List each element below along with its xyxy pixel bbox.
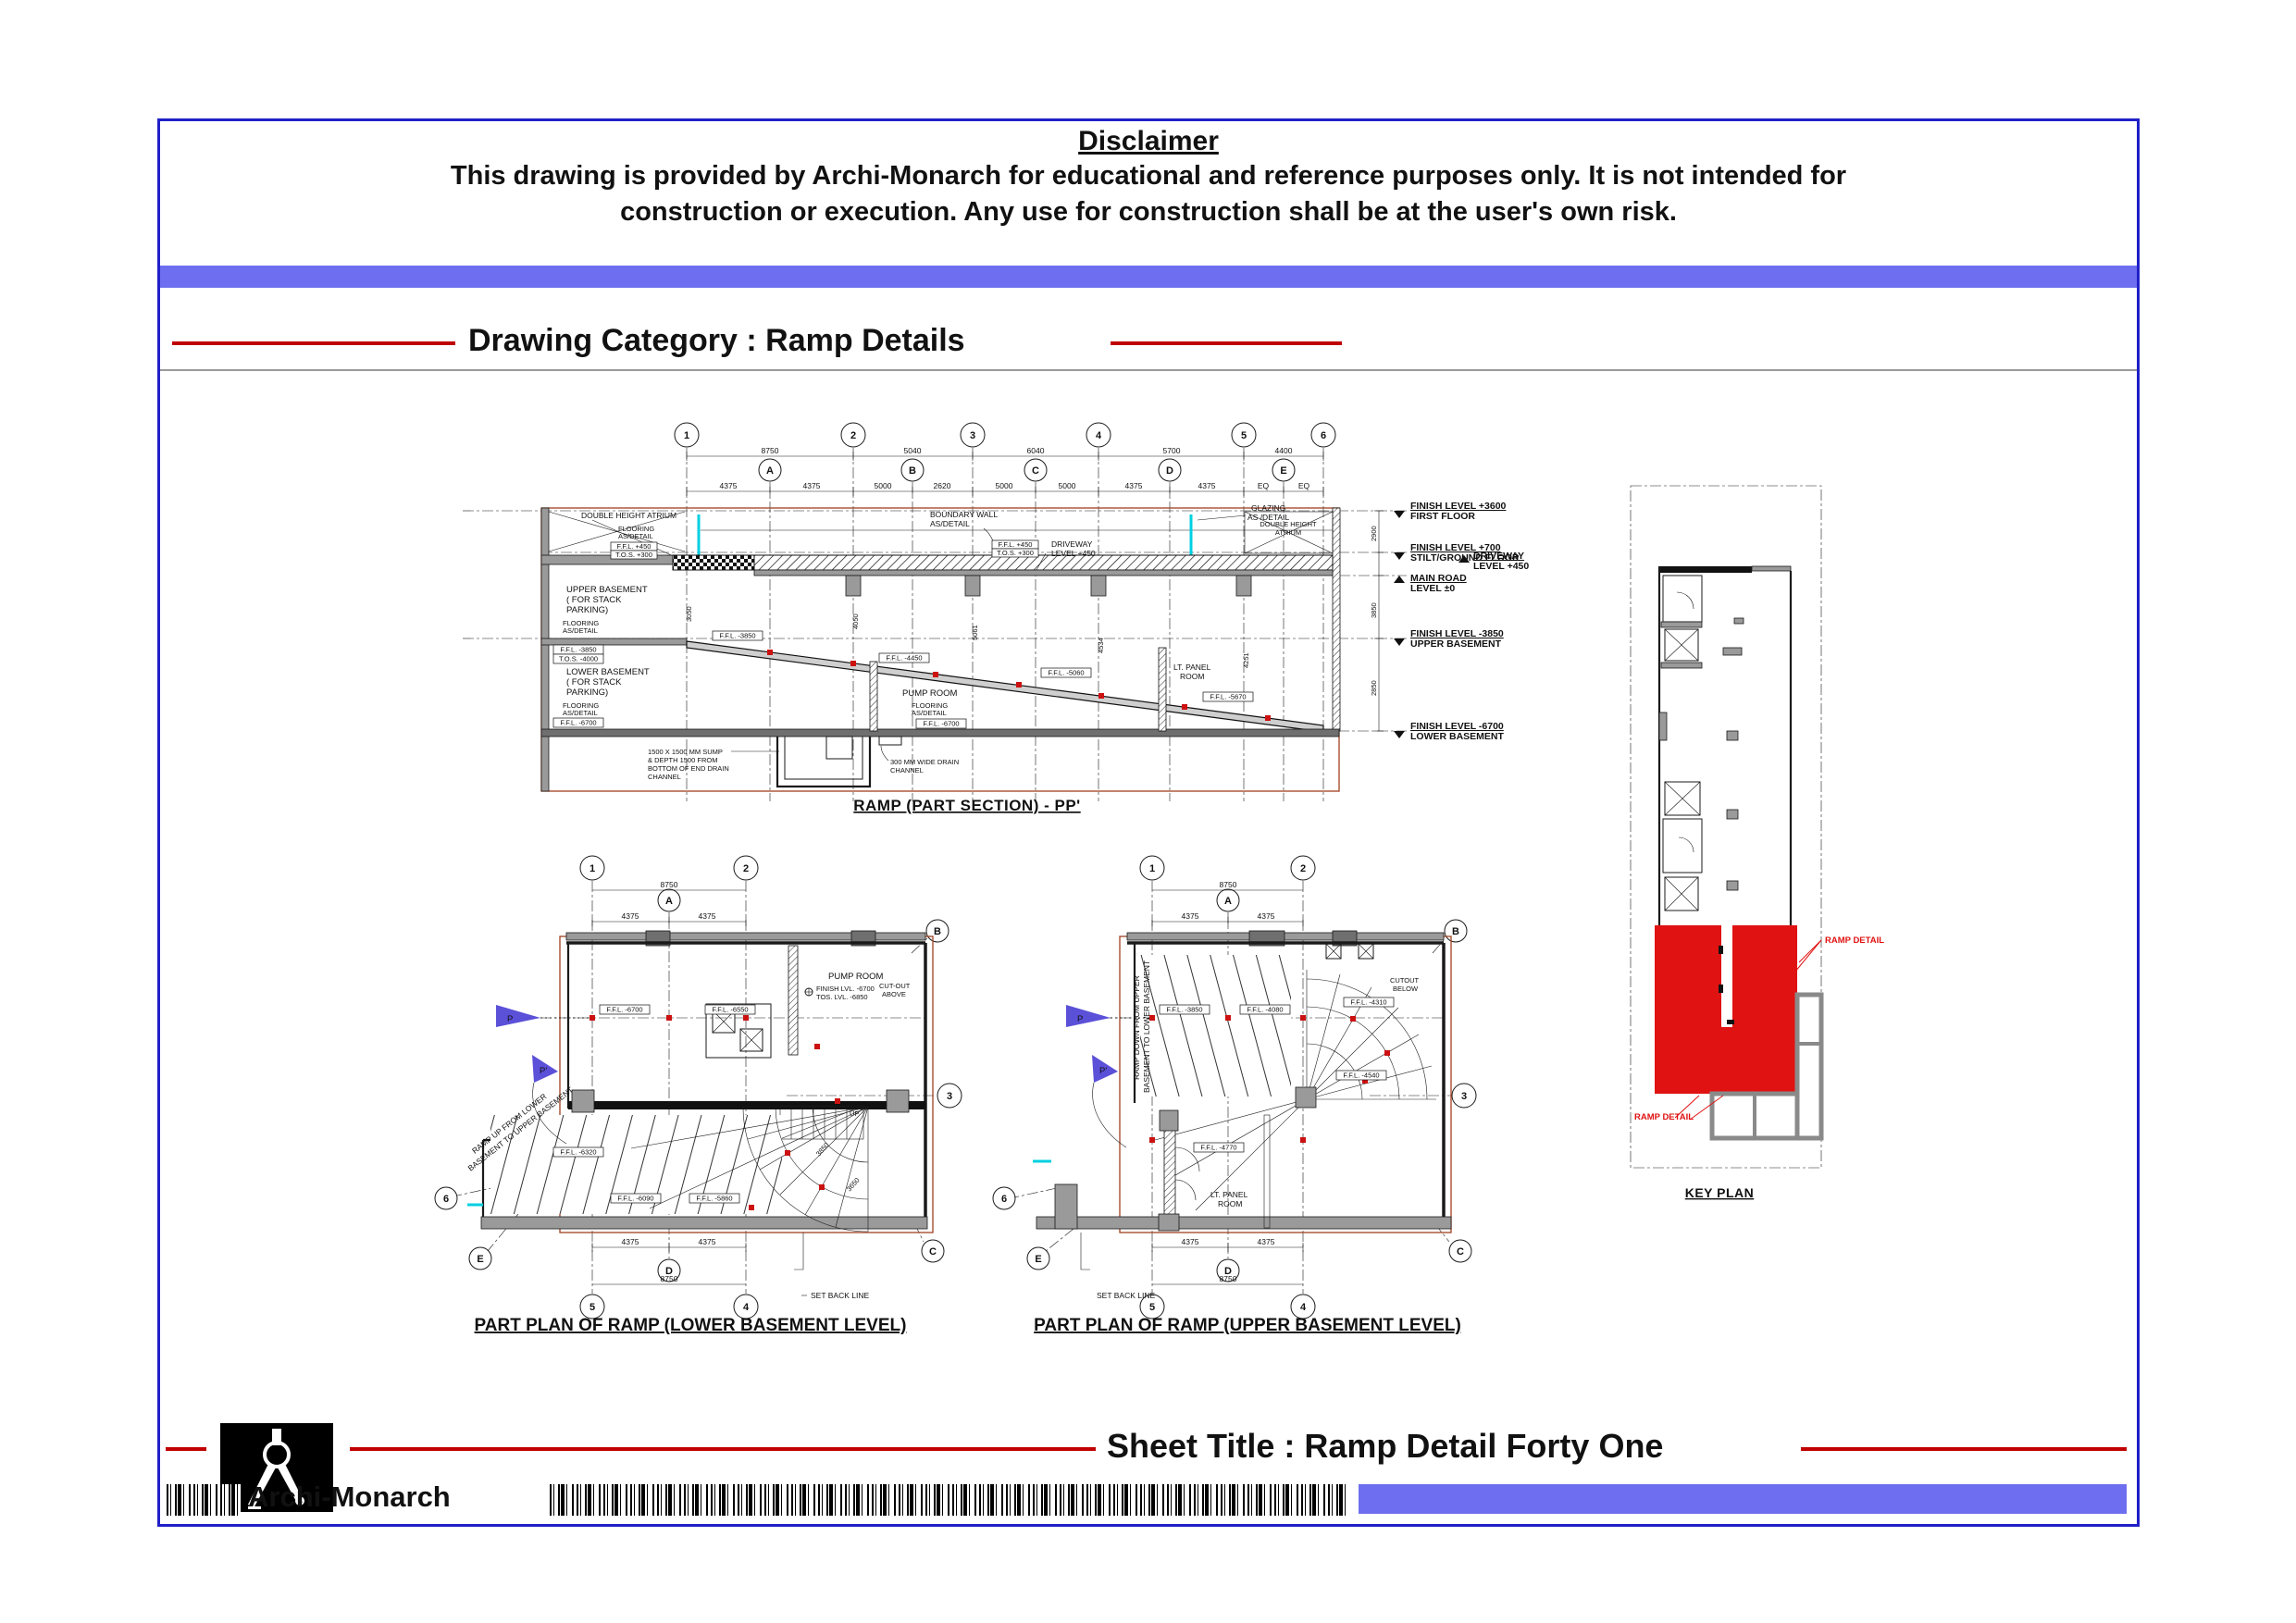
upper-basement-label: UPPER BASEMENT ( FOR STACK PARKING) FLOO… bbox=[563, 585, 648, 635]
svg-text:4375: 4375 bbox=[1198, 481, 1216, 490]
svg-text:300 MM WIDE DRAIN: 300 MM WIDE DRAIN bbox=[890, 758, 959, 766]
svg-text:LOWER BASEMENT: LOWER BASEMENT bbox=[566, 667, 650, 677]
svg-text:4375: 4375 bbox=[1182, 1237, 1199, 1246]
svg-text:BASEMENT TO LOWER BASEMENT: BASEMENT TO LOWER BASEMENT bbox=[1142, 960, 1151, 1093]
svg-text:E: E bbox=[1035, 1254, 1041, 1265]
grid-bubble-B: B bbox=[909, 465, 916, 477]
svg-text:3: 3 bbox=[947, 1091, 952, 1102]
grid-bubble-E: E bbox=[1280, 465, 1286, 477]
svg-text:3: 3 bbox=[1461, 1091, 1467, 1102]
svg-text:4: 4 bbox=[1300, 1302, 1307, 1313]
svg-text:P: P bbox=[1077, 1014, 1083, 1024]
sump-pit bbox=[777, 737, 901, 787]
svg-text:LT. PANEL: LT. PANEL bbox=[1173, 663, 1211, 672]
ramp-direction-label-upper: RAMP DOWN FROM UPPER BASEMENT TO LOWER B… bbox=[1132, 960, 1151, 1093]
svg-text:F.F.L. -6090: F.F.L. -6090 bbox=[617, 1195, 653, 1203]
svg-text:RAMP DETAIL: RAMP DETAIL bbox=[1634, 1112, 1694, 1122]
svg-text:PARKING): PARKING) bbox=[566, 688, 608, 698]
svg-text:4375: 4375 bbox=[622, 911, 639, 921]
svg-text:4375: 4375 bbox=[803, 481, 821, 490]
section-dimension-row1: 8750 5040 6040 5700 4400 bbox=[687, 446, 1323, 461]
svg-text:F.F.L. -4770: F.F.L. -4770 bbox=[1200, 1144, 1236, 1152]
svg-text:5000: 5000 bbox=[1059, 481, 1076, 490]
svg-text:3850: 3850 bbox=[1370, 602, 1378, 618]
plan-upper-title: PART PLAN OF RAMP (UPPER BASEMENT LEVEL) bbox=[1034, 1316, 1461, 1335]
svg-text:3650: 3650 bbox=[845, 1176, 862, 1193]
svg-text:5700: 5700 bbox=[1163, 446, 1181, 455]
grid-bubble-1: 1 bbox=[684, 430, 689, 441]
section-flag-p-lower: P bbox=[496, 1005, 590, 1027]
barcode-right bbox=[550, 1484, 1347, 1516]
footer-rule-mid bbox=[350, 1447, 1096, 1451]
svg-text:AS/DETAIL: AS/DETAIL bbox=[618, 532, 653, 540]
svg-text:F.F.L. -4450: F.F.L. -4450 bbox=[886, 654, 922, 663]
plan-lower-title: PART PLAN OF RAMP (LOWER BASEMENT LEVEL) bbox=[475, 1316, 907, 1335]
svg-text:8750: 8750 bbox=[661, 1274, 678, 1283]
svg-text:4375: 4375 bbox=[1258, 911, 1275, 921]
barcode-left bbox=[167, 1484, 241, 1516]
svg-text:BOTTOM OF END DRAIN: BOTTOM OF END DRAIN bbox=[648, 764, 729, 773]
svg-text:8750: 8750 bbox=[1220, 880, 1237, 889]
svg-text:4375: 4375 bbox=[699, 1237, 716, 1246]
svg-text:E: E bbox=[477, 1254, 483, 1265]
sump-annotation: 1500 X 1500 MM SUMP & DEPTH 1500 FROM BO… bbox=[648, 748, 779, 781]
svg-text:2620: 2620 bbox=[934, 481, 951, 490]
svg-text:SET BACK LINE: SET BACK LINE bbox=[811, 1291, 869, 1300]
svg-text:5: 5 bbox=[590, 1302, 595, 1313]
svg-text:2: 2 bbox=[743, 863, 749, 874]
svg-text:BELOW: BELOW bbox=[1393, 985, 1419, 993]
key-plan-title: KEY PLAN bbox=[1685, 1185, 1755, 1200]
svg-text:F.F.L. -6320: F.F.L. -6320 bbox=[560, 1148, 596, 1157]
svg-text:CHANNEL: CHANNEL bbox=[890, 766, 924, 774]
svg-text:F.F.L. -4310: F.F.L. -4310 bbox=[1350, 998, 1386, 1007]
svg-text:P': P' bbox=[1099, 1066, 1107, 1076]
section-right-dims: 2900 3850 2850 bbox=[1370, 511, 1384, 731]
svg-text:4375: 4375 bbox=[720, 481, 738, 490]
svg-text:AS/DETAIL: AS/DETAIL bbox=[563, 709, 598, 717]
svg-text:4375: 4375 bbox=[699, 911, 716, 921]
svg-text:5000: 5000 bbox=[996, 481, 1013, 490]
svg-text:EQ: EQ bbox=[1258, 481, 1270, 490]
grid-bubble-5: 5 bbox=[1241, 430, 1247, 441]
svg-text:AS /DETAIL: AS /DETAIL bbox=[1247, 513, 1289, 522]
svg-text:6040: 6040 bbox=[1027, 446, 1045, 455]
svg-text:PARKING): PARKING) bbox=[566, 605, 608, 615]
svg-text:F.F.L. -6700: F.F.L. -6700 bbox=[923, 720, 959, 728]
svg-text:AS/DETAIL: AS/DETAIL bbox=[912, 709, 947, 717]
level-first-floor: FINISH LEVEL +3600 FIRST FLOOR bbox=[1394, 501, 1507, 522]
lower-basement-floor bbox=[541, 729, 1339, 737]
svg-text:ROOM: ROOM bbox=[1218, 1199, 1242, 1208]
level-main-road: MAIN ROAD LEVEL ±0 bbox=[1394, 573, 1467, 594]
grid-bubble-D: D bbox=[1166, 465, 1173, 477]
svg-text:2900: 2900 bbox=[1370, 526, 1378, 541]
footer-rule-left bbox=[166, 1447, 206, 1451]
svg-text:FIRST FLOOR: FIRST FLOOR bbox=[1410, 511, 1475, 522]
svg-text:P': P' bbox=[540, 1066, 547, 1076]
svg-text:LOWER BASEMENT: LOWER BASEMENT bbox=[1410, 731, 1505, 742]
section-pump-room: PUMP ROOM FLOORING AS/DETAIL F.F.L. -670… bbox=[902, 688, 966, 728]
svg-text:& DEPTH 1500 FROM: & DEPTH 1500 FROM bbox=[648, 756, 717, 764]
svg-text:LEVEL +450: LEVEL +450 bbox=[1051, 549, 1096, 558]
svg-text:6: 6 bbox=[1001, 1194, 1007, 1205]
lower-basement-label: LOWER BASEMENT ( FOR STACK PARKING) FLOO… bbox=[563, 667, 650, 717]
plan-upper-lt-panel-room: LT. PANEL ROOM bbox=[1159, 1110, 1270, 1231]
svg-text:T.O.S. +300: T.O.S. +300 bbox=[997, 549, 1034, 557]
drawing-sheet-page: { "page": { "disclaimer_heading": "Discl… bbox=[0, 0, 2296, 1623]
svg-text:3850: 3850 bbox=[814, 1141, 831, 1158]
svg-text:PUMP ROOM: PUMP ROOM bbox=[902, 688, 958, 699]
svg-text:A: A bbox=[1224, 896, 1232, 907]
svg-text:UPPER BASEMENT: UPPER BASEMENT bbox=[566, 585, 648, 595]
svg-text:4375: 4375 bbox=[1182, 911, 1199, 921]
svg-text:EQ: EQ bbox=[1298, 481, 1310, 490]
svg-text:C: C bbox=[929, 1246, 937, 1258]
svg-text:1: 1 bbox=[590, 863, 595, 874]
svg-text:RAMP DOWN FROM UPPER: RAMP DOWN FROM UPPER bbox=[1132, 975, 1141, 1080]
sheet-title: Sheet Title : Ramp Detail Forty One bbox=[1107, 1427, 1663, 1466]
setback-lower: SET BACK LINE bbox=[794, 1233, 869, 1300]
svg-text:3050: 3050 bbox=[685, 606, 693, 622]
upper-basement-floor bbox=[541, 638, 687, 645]
ramp-part-section-drawing: 1 2 3 4 5 6 A B C D E 8750 5040 6040 570… bbox=[463, 423, 1529, 814]
section-flag-p2-upper: P' bbox=[1092, 1055, 1126, 1147]
brand-name: Archi-Monarch bbox=[248, 1481, 451, 1514]
svg-text:F.F.L. -5860: F.F.L. -5860 bbox=[696, 1195, 732, 1203]
svg-text:T.O.S. +300: T.O.S. +300 bbox=[615, 551, 652, 559]
svg-text:GLAZING: GLAZING bbox=[1251, 503, 1285, 513]
svg-text:F.F.L. -3850: F.F.L. -3850 bbox=[560, 646, 596, 654]
svg-text:BOUNDARY WALL: BOUNDARY WALL bbox=[930, 510, 998, 519]
svg-text:4050: 4050 bbox=[851, 613, 860, 629]
footer-rule-right bbox=[1801, 1447, 2127, 1451]
svg-text:F.F.L. +450: F.F.L. +450 bbox=[999, 540, 1033, 549]
svg-text:DRIVEWAY: DRIVEWAY bbox=[1051, 539, 1093, 549]
svg-text:B: B bbox=[934, 926, 941, 937]
grid-bubble-3: 3 bbox=[970, 430, 975, 441]
svg-text:LEVEL ±0: LEVEL ±0 bbox=[1410, 583, 1455, 594]
setback-upper: SET BACK LINE bbox=[1081, 1233, 1155, 1300]
svg-text:F.F.L. -4540: F.F.L. -4540 bbox=[1343, 1072, 1379, 1080]
cad-drawing-canvas: 1 2 3 4 5 6 A B C D E 8750 5040 6040 570… bbox=[0, 0, 2296, 1623]
svg-text:F.F.L. -5060: F.F.L. -5060 bbox=[1048, 669, 1084, 677]
grid-bubble-4: 4 bbox=[1096, 430, 1102, 441]
grid-bubble-A: A bbox=[766, 465, 774, 477]
grid-bubble-2: 2 bbox=[850, 430, 856, 441]
section-lt-panel-room: LT. PANEL ROOM bbox=[1173, 663, 1211, 681]
svg-text:4251: 4251 bbox=[1242, 652, 1250, 668]
svg-text:4: 4 bbox=[743, 1302, 750, 1313]
svg-text:F.F.L. -4080: F.F.L. -4080 bbox=[1247, 1006, 1283, 1014]
svg-text:F.F.L. -6550: F.F.L. -6550 bbox=[712, 1006, 748, 1014]
svg-text:4534: 4534 bbox=[1097, 638, 1105, 653]
svg-text:DOUBLE HEIGHT ATRIUM: DOUBLE HEIGHT ATRIUM bbox=[581, 511, 676, 520]
svg-text:ROOM: ROOM bbox=[1180, 672, 1204, 681]
svg-text:T.O.S. -4000: T.O.S. -4000 bbox=[559, 655, 598, 663]
svg-text:ATRIUM: ATRIUM bbox=[1275, 528, 1301, 537]
svg-text:F.F.L. -5670: F.F.L. -5670 bbox=[1210, 693, 1246, 701]
ramp-slab bbox=[687, 641, 1323, 732]
part-plan-upper-basement: 1 2 A B 3 C E 6 D 5 4 8750 4375 4375 bbox=[993, 856, 1476, 1335]
svg-text:8750: 8750 bbox=[1220, 1274, 1237, 1283]
svg-text:LEVEL +450: LEVEL +450 bbox=[1473, 561, 1529, 572]
ramp-detail-callout-1: RAMP DETAIL bbox=[1786, 935, 1884, 983]
svg-text:5000: 5000 bbox=[875, 481, 892, 490]
svg-text:5061: 5061 bbox=[971, 625, 979, 640]
section-title: RAMP (PART SECTION) - PP' bbox=[853, 797, 1080, 814]
driveway-slab bbox=[541, 555, 1333, 596]
svg-text:A: A bbox=[665, 896, 673, 907]
svg-text:ABOVE: ABOVE bbox=[882, 990, 906, 998]
svg-text:TOS. LVL. -6850: TOS. LVL. -6850 bbox=[816, 993, 868, 1001]
svg-text:1500 X 1500 MM SUMP: 1500 X 1500 MM SUMP bbox=[648, 748, 723, 756]
svg-text:2850: 2850 bbox=[1370, 680, 1378, 696]
grid-bubble-C: C bbox=[1032, 465, 1039, 477]
svg-text:( FOR STACK: ( FOR STACK bbox=[566, 595, 622, 605]
svg-text:5040: 5040 bbox=[904, 446, 922, 455]
svg-text:LT. PANEL: LT. PANEL bbox=[1210, 1190, 1248, 1199]
svg-text:F.F.L. -6700: F.F.L. -6700 bbox=[606, 1006, 642, 1014]
grid-bubble-6: 6 bbox=[1321, 430, 1326, 441]
ramp-stripes-upper bbox=[1140, 955, 1291, 1096]
svg-text:P: P bbox=[507, 1014, 513, 1024]
svg-text:F.F.L. -6700: F.F.L. -6700 bbox=[560, 719, 596, 727]
key-plan: RAMP DETAIL RAMP DETAIL KEY PLAN bbox=[1631, 486, 1884, 1200]
svg-text:AS/DETAIL: AS/DETAIL bbox=[563, 626, 598, 635]
svg-text:CHANNEL: CHANNEL bbox=[648, 773, 681, 781]
svg-text:B: B bbox=[1452, 926, 1459, 937]
svg-text:PUMP ROOM: PUMP ROOM bbox=[828, 972, 884, 982]
part-plan-lower-basement: 1 2 A B 3 C E 6 D 5 4 8750 4375 4375 bbox=[435, 856, 962, 1335]
svg-text:F.F.L. -3850: F.F.L. -3850 bbox=[1166, 1006, 1202, 1014]
svg-text:AS/DETAIL: AS/DETAIL bbox=[930, 519, 970, 528]
key-plan-ramp-highlight bbox=[1655, 925, 1797, 1094]
level-lower-basement: FINISH LEVEL -6700 LOWER BASEMENT bbox=[1394, 721, 1505, 742]
key-plan-building bbox=[1659, 566, 1791, 925]
svg-text:F.F.L. -3850: F.F.L. -3850 bbox=[719, 632, 755, 640]
section-dimension-row2: 4375 4375 5000 2620 5000 5000 4375 4375 … bbox=[687, 481, 1323, 496]
svg-text:F.F.L. +450: F.F.L. +450 bbox=[617, 542, 652, 551]
svg-text:8750: 8750 bbox=[762, 446, 779, 455]
drain-annotation: 300 MM WIDE DRAIN CHANNEL bbox=[881, 746, 959, 774]
svg-text:2: 2 bbox=[1300, 863, 1306, 874]
svg-text:C: C bbox=[1457, 1246, 1464, 1258]
svg-text:4375: 4375 bbox=[1125, 481, 1143, 490]
svg-text:CUTOUT: CUTOUT bbox=[1390, 976, 1420, 985]
svg-text:1: 1 bbox=[1149, 863, 1155, 874]
svg-text:RAMP DETAIL: RAMP DETAIL bbox=[1825, 935, 1884, 946]
svg-text:4375: 4375 bbox=[1258, 1237, 1275, 1246]
svg-text:UPPER BASEMENT: UPPER BASEMENT bbox=[1410, 638, 1502, 650]
svg-text:SET BACK LINE: SET BACK LINE bbox=[1097, 1291, 1155, 1300]
plan-lower-stair: UP bbox=[780, 1106, 863, 1139]
svg-text:8750: 8750 bbox=[661, 880, 678, 889]
flooring-label-top: FLOORING AS/DETAIL F.F.L. +450 T.O.S. +3… bbox=[611, 525, 657, 559]
svg-text:4375: 4375 bbox=[622, 1237, 639, 1246]
svg-text:4400: 4400 bbox=[1275, 446, 1293, 455]
svg-text:5: 5 bbox=[1149, 1302, 1155, 1313]
svg-text:( FOR STACK: ( FOR STACK bbox=[566, 677, 622, 688]
svg-text:FINISH LVL. -6700: FINISH LVL. -6700 bbox=[816, 985, 875, 993]
accent-bar-bottom bbox=[1359, 1484, 2127, 1514]
plan-lower-pump-room: PUMP ROOM FINISH LVL. -6700 TOS. LVL. -6… bbox=[805, 972, 911, 1001]
boundary-wall-label: BOUNDARY WALL AS/DETAIL bbox=[930, 510, 998, 552]
cutout-below-label: CUTOUT BELOW bbox=[1390, 976, 1420, 993]
svg-text:6: 6 bbox=[443, 1194, 449, 1205]
level-upper-basement: FINISH LEVEL -3850 UPPER BASEMENT bbox=[1394, 628, 1504, 650]
svg-text:CUT-OUT: CUT-OUT bbox=[879, 982, 911, 990]
